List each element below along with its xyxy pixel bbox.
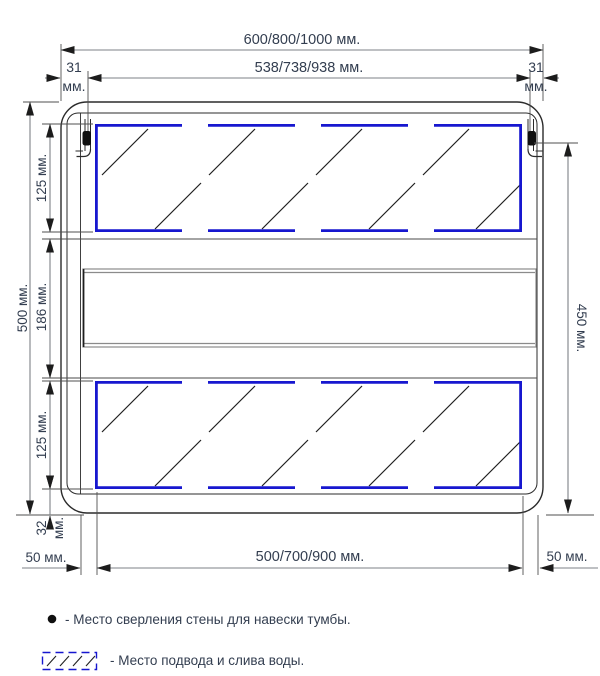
dim-offset-left-unit: мм. bbox=[62, 78, 85, 94]
water-zone-top-hatch bbox=[96, 125, 521, 231]
cabinet-mounting-diagram: 600/800/1000 мм. 538/738/938 мм. 31 мм. … bbox=[0, 0, 600, 676]
dim-left-total-label: 500 мм. bbox=[15, 284, 30, 333]
dim-left-zone-bottom-label: 125 мм. bbox=[34, 411, 49, 460]
legend-item-water: - Место подвода и слива воды. bbox=[43, 653, 305, 670]
middle-drawer-band bbox=[83, 269, 536, 347]
dim-left-zone-top-label: 125 мм. bbox=[34, 154, 49, 203]
installation-drawing-page: 600/800/1000 мм. 538/738/938 мм. 31 мм. … bbox=[0, 0, 600, 676]
dim-left-gap-unit: мм. bbox=[51, 517, 66, 539]
dim-top-total-label: 600/800/1000 мм. bbox=[244, 32, 361, 48]
legend-item-drill: - Место сверления стены для навески тумб… bbox=[48, 612, 351, 627]
dim-bottom-inner-label: 500/700/900 мм. bbox=[256, 549, 365, 565]
water-zone-bottom-hatch bbox=[96, 382, 521, 488]
dim-left-zone-middle-label: 186 мм. bbox=[34, 283, 49, 332]
dim-left-gap-value: 32 bbox=[34, 520, 49, 535]
legend-water-text: - Место подвода и слива воды. bbox=[110, 653, 304, 668]
dim-bottom-left-label: 50 мм. bbox=[25, 550, 66, 565]
dim-right-height-label: 450 мм. bbox=[574, 304, 589, 353]
water-zone-swatch-icon bbox=[43, 653, 97, 670]
dim-offset-right-value: 31 bbox=[528, 59, 544, 75]
dim-offset-left-value: 31 bbox=[66, 59, 82, 75]
drill-point-icon bbox=[48, 615, 57, 624]
legend: - Место сверления стены для навески тумб… bbox=[43, 612, 351, 670]
dim-top-inner-label: 538/738/938 мм. bbox=[255, 60, 364, 76]
dim-offset-right-unit: мм. bbox=[524, 78, 547, 94]
legend-drill-text: - Место сверления стены для навески тумб… bbox=[65, 612, 351, 627]
dim-bottom-right-label: 50 мм. bbox=[546, 549, 587, 564]
